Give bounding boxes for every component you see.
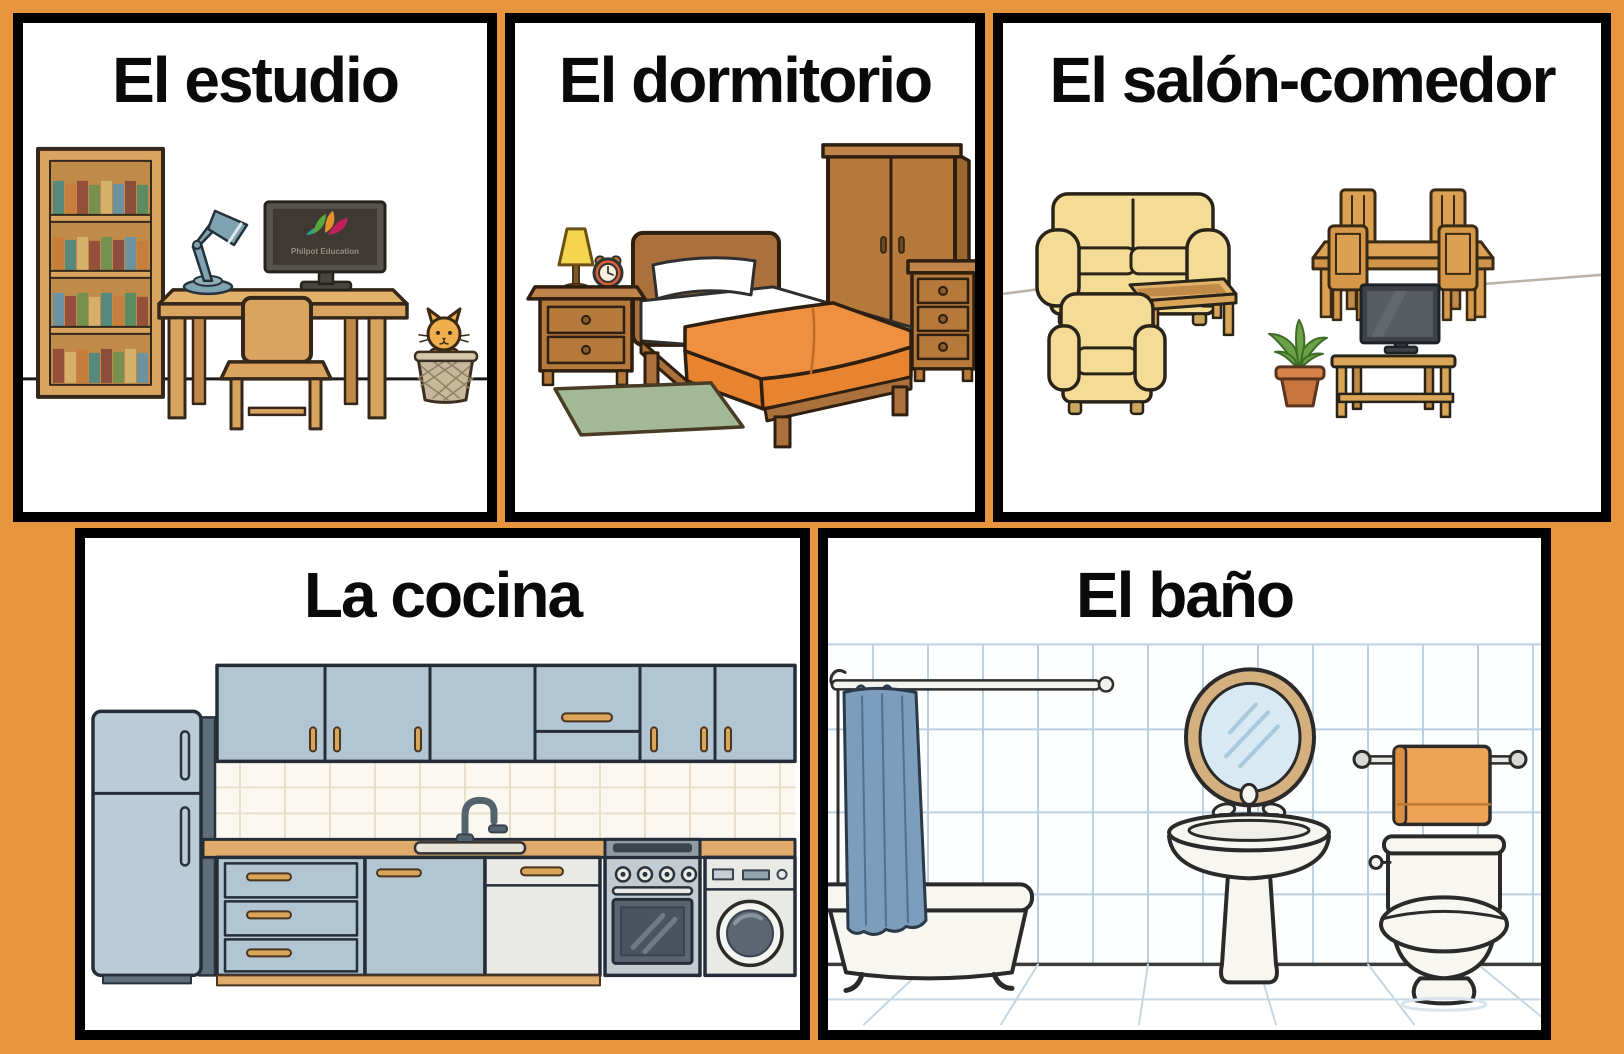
computer-monitor: Philpot Education bbox=[265, 202, 385, 290]
wastebasket bbox=[415, 352, 477, 403]
chest-of-drawers bbox=[908, 261, 975, 381]
bathroom-illustration bbox=[828, 629, 1541, 1030]
desk-lamp bbox=[184, 211, 247, 294]
monitor-watermark: Philpot Education bbox=[291, 247, 359, 256]
floor-line-left bbox=[1003, 289, 1041, 294]
panel-estudio: El estudio bbox=[13, 13, 497, 522]
kitchen-illustration bbox=[85, 629, 800, 1030]
bedroom-illustration bbox=[515, 114, 975, 512]
panel-title-cocina: La cocina bbox=[304, 562, 581, 629]
potted-plant bbox=[1269, 320, 1327, 406]
base-cabinet bbox=[365, 858, 485, 976]
cat bbox=[419, 309, 469, 357]
living-dining-illustration bbox=[1003, 114, 1601, 512]
nightstand bbox=[528, 229, 645, 385]
refrigerator bbox=[93, 712, 201, 984]
panel-title-estudio: El estudio bbox=[112, 47, 398, 114]
washing-machine bbox=[705, 858, 795, 976]
armchair bbox=[1049, 294, 1165, 414]
wall-cabinets bbox=[217, 666, 795, 762]
tv-stand bbox=[1332, 356, 1455, 417]
rug bbox=[555, 383, 743, 435]
study-illustration: Philpot Education bbox=[23, 114, 487, 512]
floor-line-right bbox=[1485, 275, 1601, 284]
plinth bbox=[217, 976, 600, 986]
panel-salon-comedor: El salón-comedor bbox=[993, 13, 1611, 522]
vocabulary-poster: El estudio bbox=[0, 0, 1624, 1054]
oven-stove bbox=[605, 840, 700, 976]
panel-bano: El baño bbox=[818, 528, 1551, 1040]
cat-in-wastebasket bbox=[415, 309, 477, 403]
television bbox=[1361, 285, 1439, 353]
alarm-clock bbox=[594, 257, 622, 288]
panel-cocina: La cocina bbox=[75, 528, 810, 1040]
towel bbox=[1394, 747, 1490, 825]
panel-title-salon-comedor: El salón-comedor bbox=[1050, 47, 1555, 114]
dishwasher bbox=[485, 858, 600, 976]
panel-title-bano: El baño bbox=[1076, 562, 1293, 629]
toilet bbox=[1370, 837, 1507, 1011]
panel-title-dormitorio: El dormitorio bbox=[559, 47, 931, 114]
panel-dormitorio: El dormitorio bbox=[505, 13, 985, 522]
bookshelf bbox=[38, 149, 163, 397]
drawer-unit bbox=[217, 858, 365, 976]
table-lamp bbox=[559, 229, 593, 292]
shower-curtain bbox=[844, 686, 926, 935]
